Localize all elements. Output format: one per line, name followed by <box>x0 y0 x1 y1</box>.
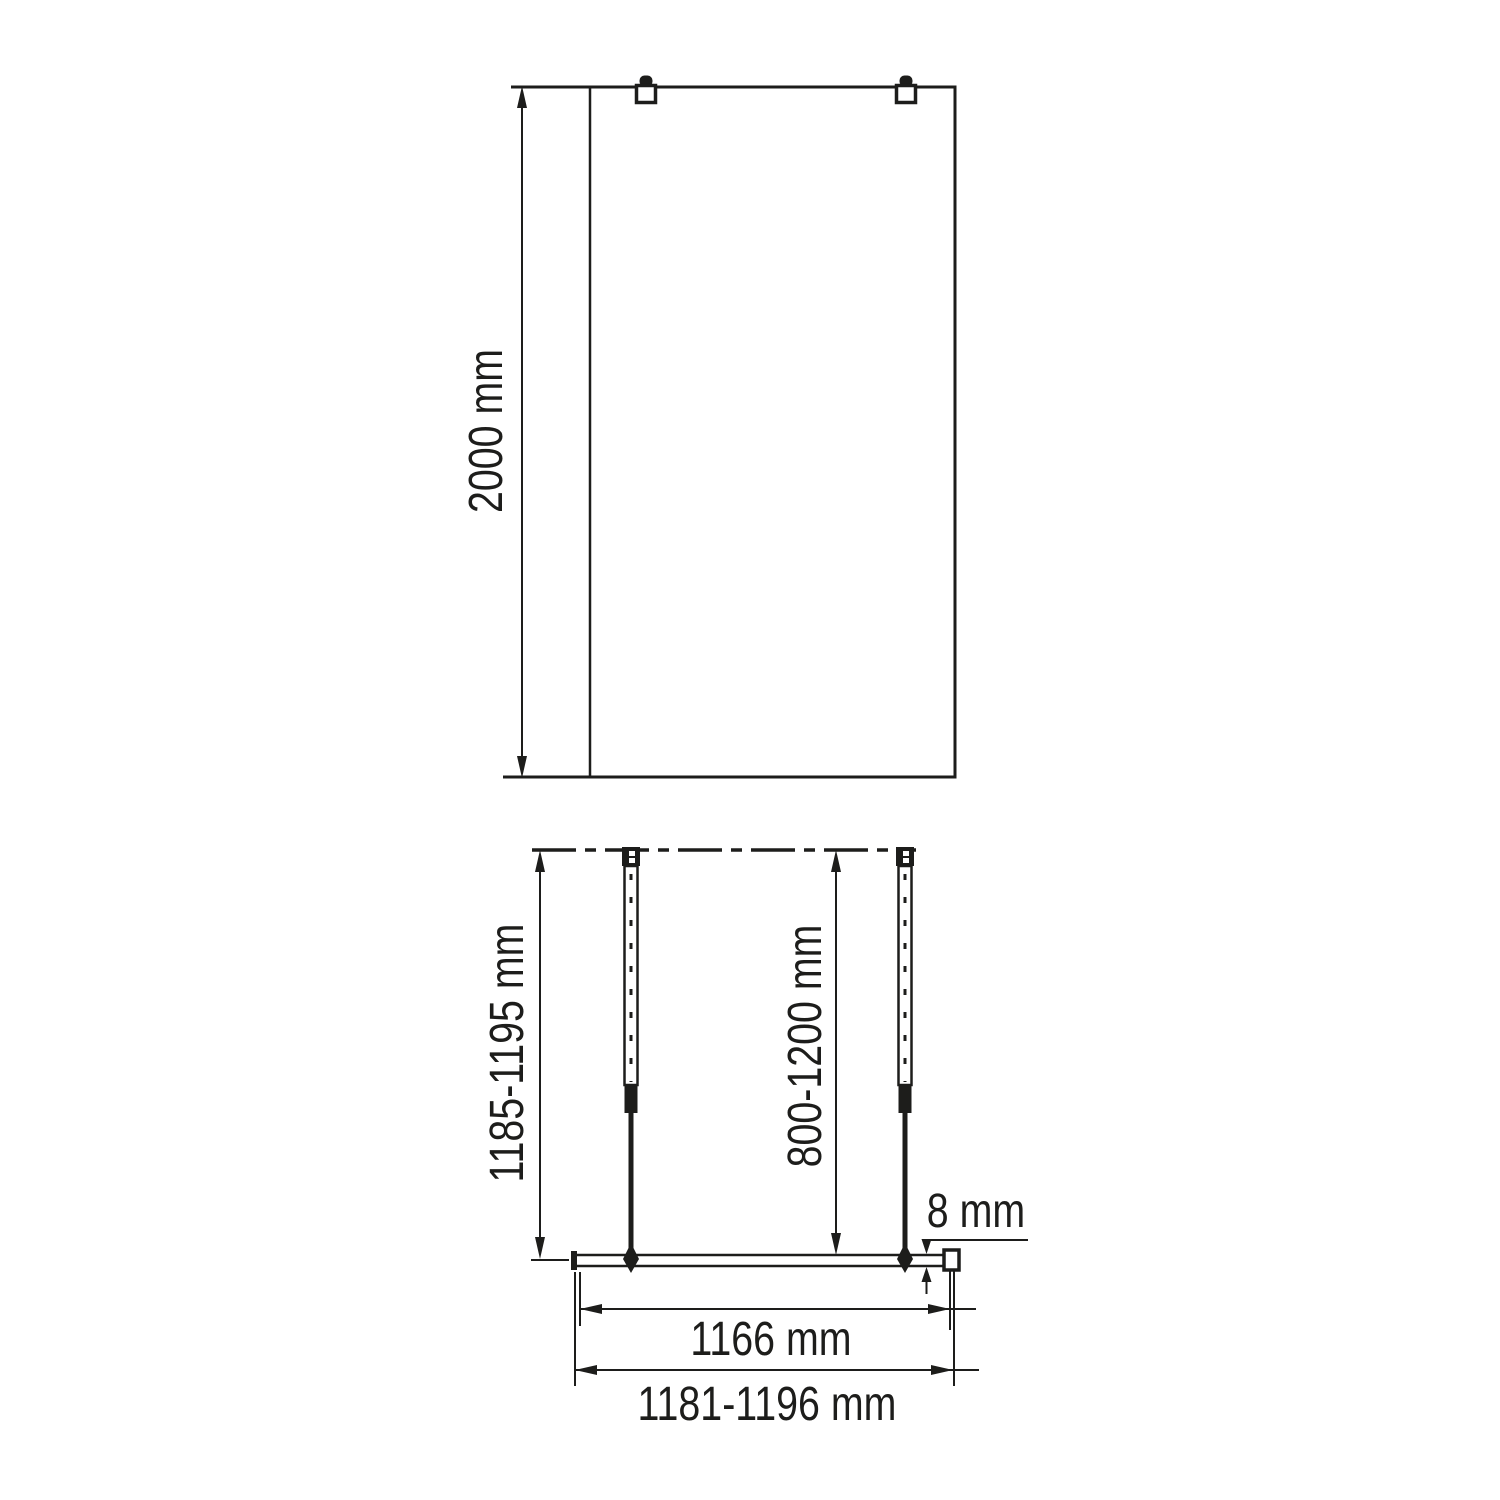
support-rod-left-icon <box>622 847 640 1273</box>
shower-screen-dimension-drawing: 2000 mm 1185-1195 mm 800-1200 mm 8 mm 11… <box>0 0 1500 1500</box>
top-bracket-left-icon <box>637 76 656 103</box>
bar-dim-arrow-up <box>831 850 841 872</box>
bar-dim-arrow-down <box>831 1233 841 1255</box>
overall-width-arrow-left <box>575 1365 597 1375</box>
height-dim-label: 2000 mm <box>463 349 511 513</box>
support-rod-right-icon <box>896 847 914 1273</box>
overall-width-arrow-right <box>931 1365 953 1375</box>
support-bar-dim-label: 800-1200 mm <box>782 925 830 1168</box>
glass-width-arrow-left <box>580 1304 602 1314</box>
top-bracket-right-icon <box>897 76 916 103</box>
depth-dim-label: 1185-1195 mm <box>484 924 532 1183</box>
glass-left-end-cap <box>571 1251 577 1270</box>
drawing-lines <box>0 0 1500 1500</box>
glass-thickness-label: 8 mm <box>927 1188 1025 1236</box>
wall-profile-end-cap <box>944 1250 959 1270</box>
overall-width-label: 1181-1196 mm <box>638 1381 897 1429</box>
glass-width-label: 1166 mm <box>690 1316 851 1364</box>
glass-width-arrow-right <box>928 1304 950 1314</box>
depth-dim-arrow-up <box>535 850 545 872</box>
height-dim-arrow-up <box>517 86 527 108</box>
front-view <box>503 76 955 779</box>
height-dim-arrow-down <box>517 756 527 778</box>
depth-dim-arrow-down <box>535 1237 545 1259</box>
